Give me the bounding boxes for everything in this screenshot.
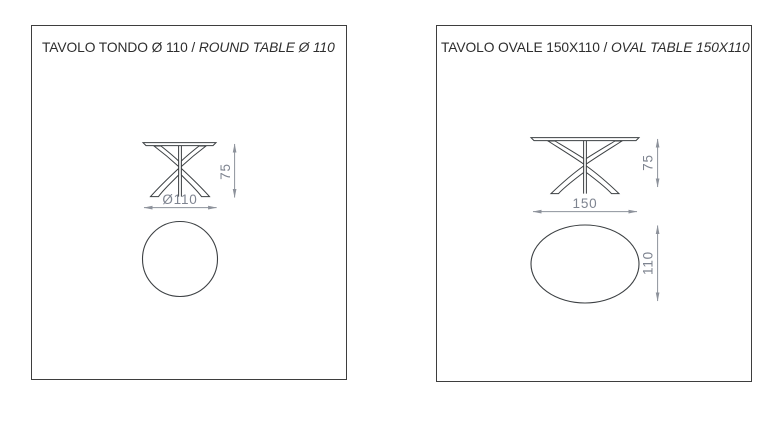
height-dimension-label: 75	[641, 154, 656, 171]
table-side-view	[531, 138, 639, 194]
round-table-drawing: 75 Ø110	[32, 26, 345, 378]
height-dimension: 75	[218, 144, 235, 198]
oval-table-drawing: 75 150 110	[437, 26, 750, 380]
leg-upper-right	[181, 146, 206, 167]
oval-top-view	[531, 225, 639, 303]
width-dimension: 150	[533, 196, 637, 212]
leg-upper-left	[548, 141, 584, 164]
depth-dimension-label: 110	[641, 251, 656, 275]
circle-top-view	[143, 222, 218, 297]
panel-round-table: TAVOLO TONDO Ø 110 / ROUND TABLE Ø 110	[31, 25, 347, 380]
table-side-view	[143, 143, 216, 197]
tabletop	[531, 138, 639, 141]
width-dimension-label: 150	[573, 196, 598, 211]
depth-dimension: 110	[641, 226, 658, 302]
diameter-dimension-label: Ø110	[162, 192, 197, 207]
leg-upper-left	[154, 146, 179, 167]
height-dimension-label: 75	[218, 163, 233, 180]
tabletop	[143, 143, 216, 146]
panel-oval-table: TAVOLO OVALE 150X110 / OVAL TABLE 150X11…	[436, 25, 752, 382]
height-dimension: 75	[641, 139, 658, 187]
leg-lower-left	[551, 166, 584, 194]
leg-lower-right	[586, 166, 619, 194]
technical-drawing-sheet: TAVOLO TONDO Ø 110 / ROUND TABLE Ø 110	[0, 0, 766, 423]
leg-upper-right	[586, 141, 622, 164]
